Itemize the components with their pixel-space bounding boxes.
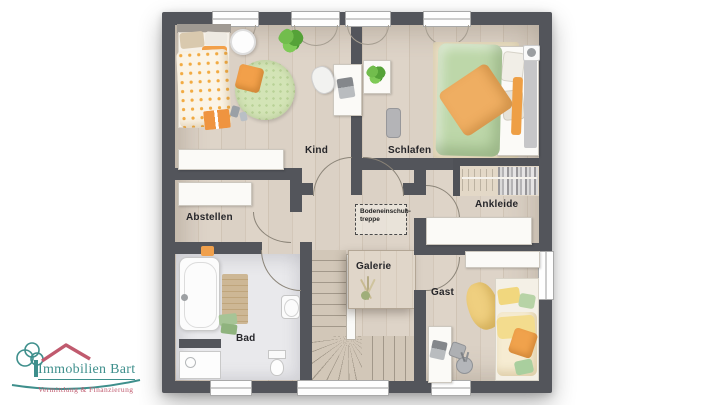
gift-box	[203, 109, 231, 131]
abstellen-shelf	[178, 182, 252, 206]
bath-half-wall	[179, 339, 221, 348]
closet-hangers	[462, 169, 498, 191]
attic-line2: treppe	[360, 216, 406, 224]
toilet-bowl	[270, 359, 284, 376]
room-label-galerie: Galerie	[356, 261, 391, 272]
pillow	[518, 293, 536, 310]
bed-headboard	[524, 52, 537, 148]
attic-hatch-label: Bodeneinschub- treppe	[355, 204, 407, 235]
room-label-abstellen: Abstellen	[186, 212, 233, 223]
side-table	[230, 29, 256, 55]
stairs-upper-flight	[312, 250, 346, 336]
sink-basin	[284, 299, 299, 317]
speaker-cone	[527, 48, 536, 57]
folded-blanket	[511, 77, 523, 135]
pillow	[497, 287, 521, 306]
stairs-winder	[312, 336, 362, 381]
closet-rail	[462, 177, 537, 179]
wall-bad-right	[300, 242, 312, 381]
room-label-gast: Gast	[431, 287, 454, 298]
ankleide-wardrobe	[426, 217, 532, 245]
window	[297, 380, 389, 396]
wall-hall-ankleide-b	[414, 218, 426, 255]
faucet	[181, 294, 188, 301]
stairs-lower-flight	[362, 336, 414, 381]
wall-abstellen-right	[290, 168, 302, 212]
wall-hall-stub-left	[302, 183, 313, 195]
room-label-ankleide: Ankleide	[475, 199, 518, 210]
wall-hall-gast	[414, 290, 426, 381]
kind-sideboard	[178, 149, 284, 170]
plant-icon	[278, 28, 304, 54]
room-label-bad: Bad	[236, 333, 256, 344]
floor-plan-screenshot: Bodeneinschub- treppe Kind Schlafen Abst…	[0, 0, 720, 405]
towel	[201, 246, 214, 256]
wall-hall-ankleide-a	[414, 166, 426, 185]
bathtub-basin	[184, 262, 217, 328]
wall-abstellen-bad	[175, 242, 262, 254]
window	[210, 380, 252, 396]
logo: Immobilien Bart Vermittlung & Finanzieru…	[8, 338, 148, 400]
room-label-schlafen: Schlafen	[388, 145, 431, 156]
dried-plant-icon	[352, 274, 382, 304]
laptop	[337, 77, 356, 99]
attic-line1: Bodeneinschub-	[360, 208, 406, 216]
towel	[220, 323, 237, 335]
leaf	[361, 291, 370, 300]
closet-clothes	[498, 167, 538, 195]
gast-bed	[495, 278, 539, 381]
room-label-kind: Kind	[305, 145, 328, 156]
plant-icon	[366, 65, 386, 85]
window	[538, 251, 554, 300]
toilet-tank	[268, 350, 286, 359]
shower-drain	[185, 357, 196, 368]
pillow	[179, 31, 205, 49]
armchair	[386, 108, 401, 138]
logo-subtitle: Vermittlung & Finanzierung	[38, 385, 133, 394]
gast-shelf	[465, 251, 540, 268]
pillow	[205, 31, 228, 47]
